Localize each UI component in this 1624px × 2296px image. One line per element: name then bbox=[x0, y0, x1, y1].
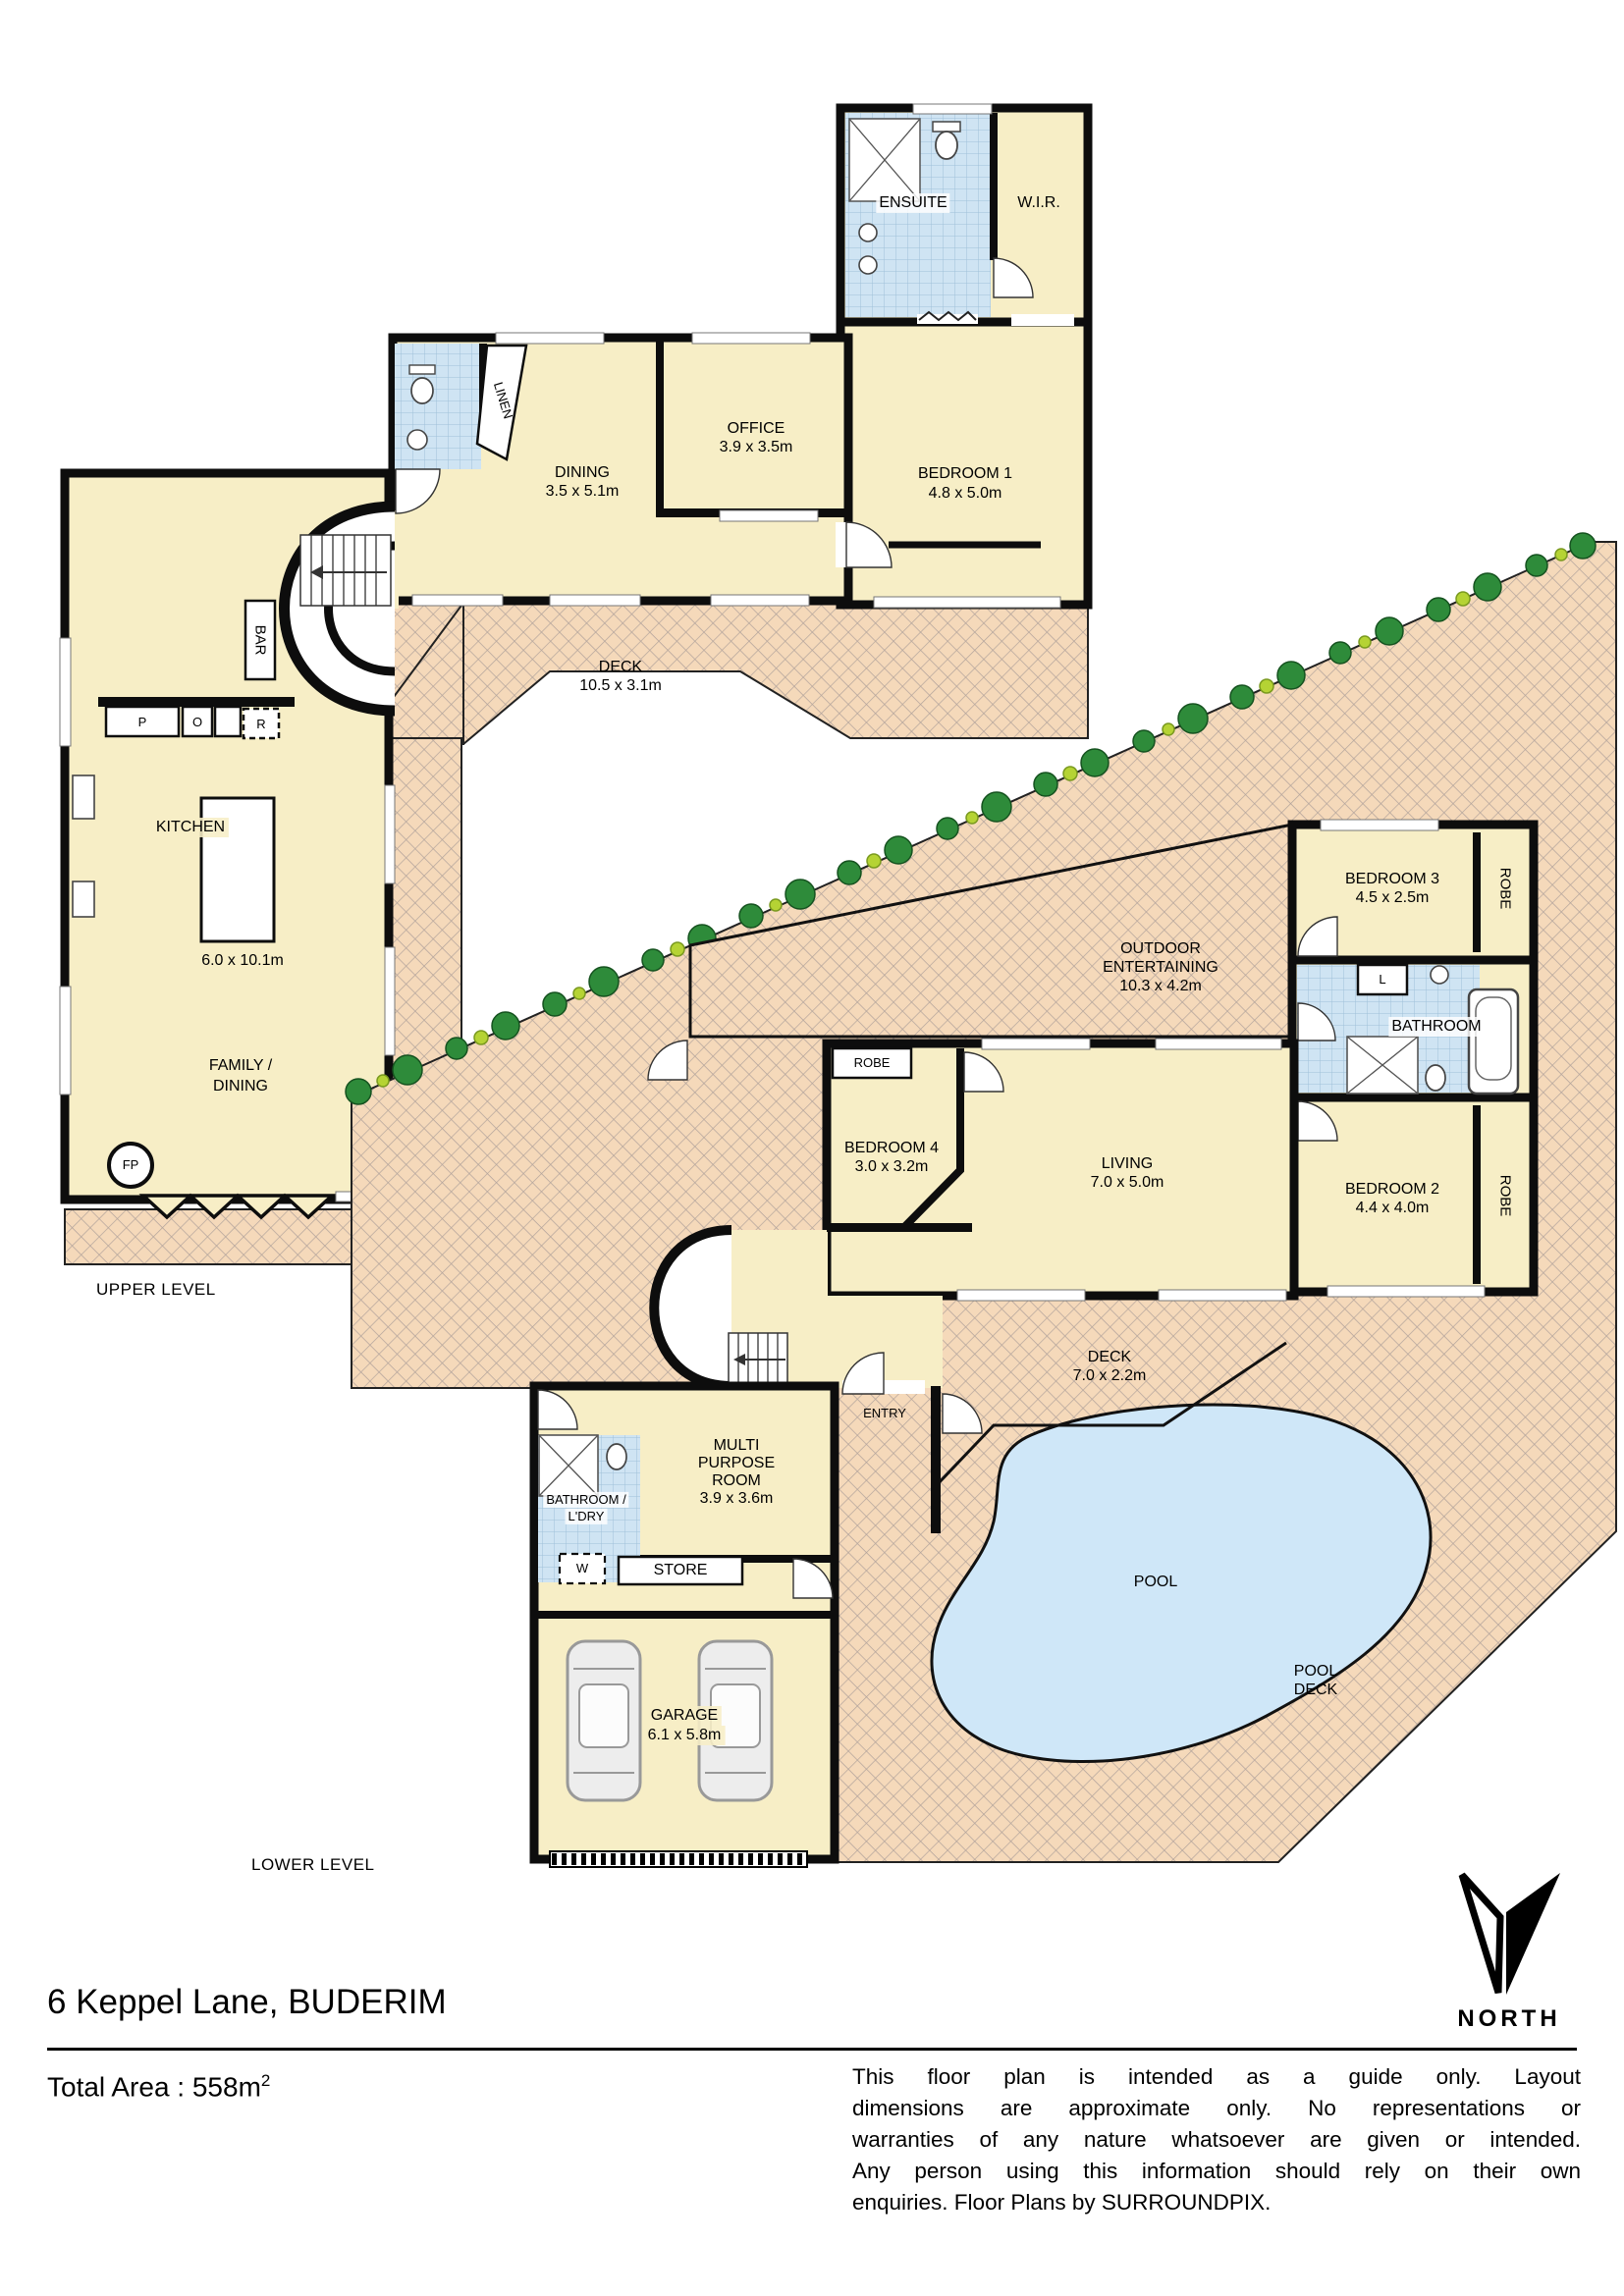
bedroom1-dims: 4.8 x 5.0m bbox=[929, 484, 1002, 504]
office-dims: 3.9 x 3.5m bbox=[720, 438, 793, 457]
robe2-label: ROBE bbox=[1497, 1175, 1514, 1217]
living-label: LIVING bbox=[1102, 1154, 1153, 1174]
kitchen-label: KITCHEN bbox=[152, 818, 229, 837]
window bbox=[957, 1290, 1085, 1301]
window bbox=[874, 597, 1060, 608]
bedroom4-label: BEDROOM 4 bbox=[844, 1139, 939, 1158]
window bbox=[385, 947, 395, 1055]
car-icon bbox=[568, 1641, 640, 1800]
linen-l-label: L bbox=[1379, 972, 1385, 988]
disclaimer-line: enquiries. Floor Plans by SURROUNDPIX. bbox=[852, 2187, 1581, 2218]
dining-dims: 3.5 x 5.1m bbox=[546, 482, 620, 502]
kitchen-dims: 6.0 x 10.1m bbox=[201, 951, 284, 971]
lower-deck-label: DECK bbox=[1088, 1348, 1131, 1367]
washer-label: W bbox=[576, 1561, 588, 1576]
window bbox=[385, 785, 395, 883]
bath-ldry-label-1: BATHROOM / bbox=[543, 1492, 628, 1508]
entry-label: ENTRY bbox=[863, 1406, 906, 1421]
outdoor-label-2: ENTERTAINING bbox=[1103, 958, 1218, 978]
page-title: 6 Keppel Lane, BUDERIM bbox=[47, 1983, 447, 2022]
bathtub-icon bbox=[1469, 989, 1518, 1094]
total-area-text: Total Area : 558m bbox=[47, 2071, 261, 2102]
window bbox=[412, 595, 503, 606]
store-label: STORE bbox=[654, 1561, 708, 1580]
ensuite-label: ENSUITE bbox=[876, 193, 949, 213]
robe3-label: ROBE bbox=[1497, 868, 1514, 910]
fridge-label: R bbox=[256, 717, 265, 732]
window bbox=[982, 1039, 1090, 1049]
dining-label: DINING bbox=[555, 463, 610, 483]
garage-dims: 6.1 x 5.8m bbox=[644, 1726, 726, 1745]
bath-ldry-label-2: L'DRY bbox=[566, 1509, 608, 1524]
window bbox=[496, 333, 604, 344]
bedroom3-dims: 4.5 x 2.5m bbox=[1356, 888, 1430, 908]
window bbox=[1327, 1286, 1485, 1297]
mpr-dims: 3.9 x 3.6m bbox=[700, 1489, 774, 1509]
fireplace-label: FP bbox=[123, 1157, 139, 1173]
upper-deck-label: DECK bbox=[599, 658, 642, 677]
window bbox=[711, 595, 809, 606]
total-area: Total Area : 558m2 bbox=[47, 2071, 270, 2103]
powder-room-floor bbox=[395, 344, 481, 469]
bedroom4-dims: 3.0 x 3.2m bbox=[855, 1157, 929, 1177]
bar-label: BAR bbox=[252, 625, 269, 656]
divider bbox=[47, 2048, 1577, 2051]
pool-deck-label-2: DECK bbox=[1294, 1681, 1337, 1700]
north-label: NORTH bbox=[1457, 2005, 1560, 2033]
total-area-sup: 2 bbox=[261, 2071, 270, 2090]
stairs-icon bbox=[300, 535, 391, 606]
window bbox=[720, 510, 818, 521]
bedroom2-label: BEDROOM 2 bbox=[1345, 1180, 1439, 1200]
basin-icon bbox=[1431, 966, 1448, 984]
window bbox=[60, 987, 71, 1095]
pool-deck-label-1: POOL bbox=[1294, 1662, 1337, 1682]
family-label-1: FAMILY / bbox=[209, 1056, 272, 1076]
disclaimer-line: This floor plan is intended as a guide o… bbox=[852, 2061, 1581, 2093]
wir-label: W.I.R. bbox=[1017, 193, 1060, 213]
mpr-label-3: ROOM bbox=[712, 1471, 761, 1491]
disclaimer: This floor plan is intended as a guide o… bbox=[852, 2061, 1581, 2218]
toilet-icon bbox=[933, 122, 960, 159]
family-label-2: DINING bbox=[213, 1077, 268, 1096]
bedroom3-label: BEDROOM 3 bbox=[1345, 870, 1439, 889]
basin-icon bbox=[859, 256, 877, 274]
stairs-icon bbox=[729, 1333, 787, 1386]
upper-level-label: UPPER LEVEL bbox=[96, 1280, 216, 1300]
pantry-label: P bbox=[138, 715, 147, 730]
toilet-icon bbox=[1426, 1065, 1445, 1091]
bathroom-label: BATHROOM bbox=[1388, 1017, 1484, 1037]
disclaimer-line: Any person using this information should… bbox=[852, 2156, 1581, 2187]
disclaimer-line: dimensions are approximate only. No repr… bbox=[852, 2093, 1581, 2124]
window bbox=[550, 595, 640, 606]
pool-label: POOL bbox=[1134, 1573, 1177, 1592]
mpr-label-1: MULTI bbox=[714, 1436, 760, 1456]
outdoor-dims: 10.3 x 4.2m bbox=[1119, 977, 1202, 996]
office-label: OFFICE bbox=[728, 419, 785, 439]
oven-label: O bbox=[192, 715, 202, 730]
cooktop-icon bbox=[73, 881, 94, 917]
window bbox=[692, 333, 810, 344]
bedroom2-dims: 4.4 x 4.0m bbox=[1356, 1199, 1430, 1218]
appliance-icon bbox=[73, 775, 94, 819]
bedroom1-label: BEDROOM 1 bbox=[918, 464, 1012, 484]
outdoor-label-1: OUTDOOR bbox=[1120, 939, 1201, 959]
lower-level-label: LOWER LEVEL bbox=[251, 1855, 375, 1875]
north-arrow-icon bbox=[1462, 1873, 1560, 1995]
robe4-label: ROBE bbox=[854, 1055, 891, 1071]
basin-icon bbox=[859, 224, 877, 241]
basin-icon bbox=[407, 430, 427, 450]
toilet-icon bbox=[607, 1444, 626, 1469]
window bbox=[60, 638, 71, 746]
living-dims: 7.0 x 5.0m bbox=[1091, 1173, 1164, 1193]
floorplan-page: ENSUITE W.I.R. BEDROOM 1 4.8 x 5.0m OFFI… bbox=[0, 0, 1624, 2296]
disclaimer-line: warranties of any nature whatsoever are … bbox=[852, 2124, 1581, 2156]
lower-deck-dims: 7.0 x 2.2m bbox=[1073, 1366, 1147, 1386]
mpr-label-2: PURPOSE bbox=[698, 1454, 775, 1473]
window bbox=[1321, 820, 1438, 830]
toilet-icon bbox=[409, 365, 435, 403]
garage-label: GARAGE bbox=[647, 1706, 722, 1726]
window bbox=[1156, 1039, 1281, 1049]
floorplan-graphics bbox=[0, 0, 1624, 2296]
window bbox=[1159, 1290, 1286, 1301]
upper-deck-dims: 10.5 x 3.1m bbox=[579, 676, 662, 696]
